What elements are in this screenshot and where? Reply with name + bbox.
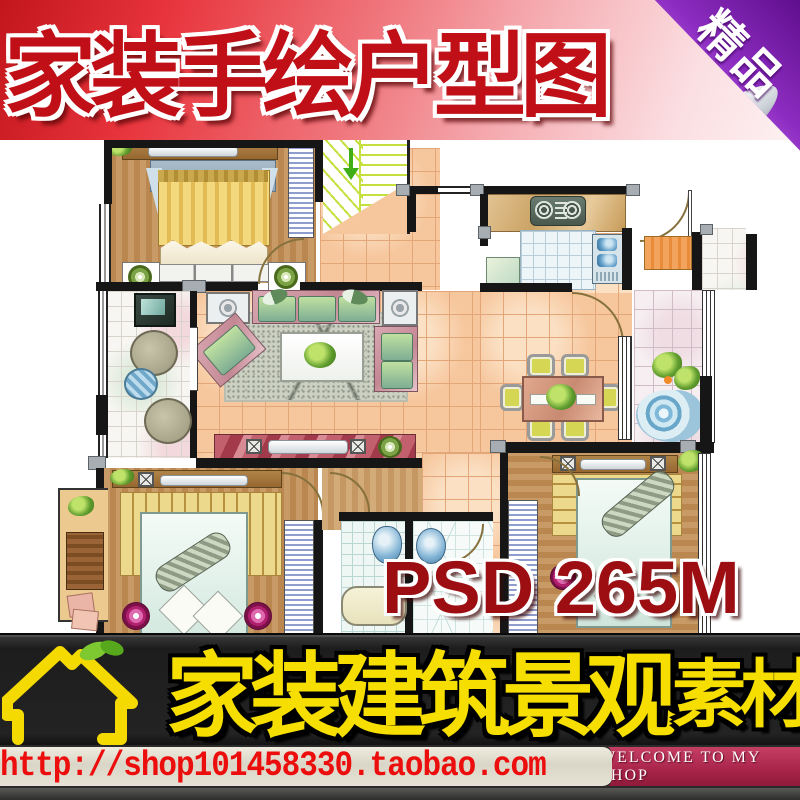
cushion-pink	[71, 609, 99, 632]
round-stool	[122, 602, 150, 630]
plant-icon	[68, 496, 94, 516]
window	[98, 291, 108, 395]
pillar	[700, 224, 713, 235]
tv-icon	[268, 440, 348, 454]
speaker-box	[350, 439, 366, 454]
wall	[96, 282, 258, 291]
window	[98, 435, 108, 458]
pillar	[490, 440, 506, 453]
leaf-icon	[98, 639, 125, 658]
side-table-lamp	[382, 290, 418, 326]
dining-window	[618, 336, 632, 440]
round-speaker	[378, 436, 402, 458]
wall	[104, 140, 112, 204]
shelf-bar	[580, 459, 646, 470]
entry-balcony-floor	[702, 228, 746, 290]
speaker-box	[246, 439, 262, 454]
centerpiece-plant	[304, 342, 336, 368]
dining-chair	[527, 354, 555, 378]
shelf-bar	[160, 475, 248, 486]
shop-url-bar: http://shop101458330.taobao.com	[0, 745, 612, 788]
wall	[96, 395, 108, 435]
chaise-sofa	[374, 326, 418, 392]
wall	[692, 232, 702, 290]
entry-mat	[644, 236, 692, 270]
sink-basin	[597, 238, 617, 251]
napkin	[576, 394, 596, 405]
stove-grill	[555, 202, 567, 219]
nightstand-box	[650, 456, 666, 471]
footer-strip	[0, 788, 800, 800]
stove-icon	[530, 196, 586, 226]
wall	[339, 512, 493, 521]
dining-chair	[561, 354, 589, 378]
bottom-banner-title: 家装建筑景观素材	[166, 629, 800, 747]
wall	[746, 234, 757, 290]
duvet-ruffle	[158, 170, 268, 182]
drain-rack	[596, 272, 618, 281]
kitchen-floor	[520, 230, 596, 290]
flower-icon	[664, 376, 672, 384]
pillar	[396, 184, 410, 196]
sofa-cushion	[298, 296, 336, 322]
wall	[622, 228, 632, 290]
water-feature	[636, 390, 702, 442]
banner-title: 家装手绘户型图	[4, 0, 664, 140]
product-image: PSD 265M 家装手绘户型图 精品 家装建筑景观素材 WELCOME TO …	[0, 0, 800, 800]
stair-arrow-head	[343, 168, 359, 180]
master-wardrobe	[288, 146, 314, 238]
psd-size-label: PSD 265M	[382, 545, 800, 630]
house-icon	[2, 639, 162, 745]
sliding-door	[189, 327, 198, 391]
table-plant	[546, 384, 576, 410]
wall	[196, 458, 422, 468]
outer-balcony	[58, 488, 108, 622]
small-round-table	[124, 368, 158, 400]
round-table	[144, 398, 192, 444]
bottom-title-suffix: 素材	[672, 635, 800, 742]
kitchen-sink-unit	[592, 234, 624, 284]
bed-end-bench	[156, 264, 272, 282]
chair-cushion	[381, 361, 413, 389]
bottom-title-main: 家装建筑景观	[166, 622, 670, 755]
shop-url: http://shop101458330.taobao.com	[0, 746, 546, 786]
pillar	[478, 226, 491, 239]
welcome-text: WELCOME TO MY SHOP	[600, 749, 800, 785]
window	[99, 204, 111, 284]
window	[438, 186, 472, 194]
wall	[480, 283, 572, 292]
wall	[190, 291, 197, 327]
pillar	[626, 184, 640, 196]
chair-cushion	[381, 333, 413, 361]
wood-lounger	[66, 532, 104, 590]
entry-door-arc	[640, 192, 690, 242]
dining-chair	[500, 384, 524, 411]
burner-icon	[535, 201, 553, 219]
glass-panel	[141, 299, 165, 315]
wall	[472, 186, 638, 194]
bottom-banner: 家装建筑景观素材	[0, 633, 800, 747]
sink-basin	[597, 254, 617, 267]
welcome-tag: WELCOME TO MY SHOP	[600, 745, 800, 788]
nightstand-box	[138, 472, 154, 487]
cabinet-icon	[134, 293, 176, 327]
wall	[104, 140, 338, 148]
wall	[700, 376, 712, 442]
stair-arrow-stem	[349, 148, 353, 170]
